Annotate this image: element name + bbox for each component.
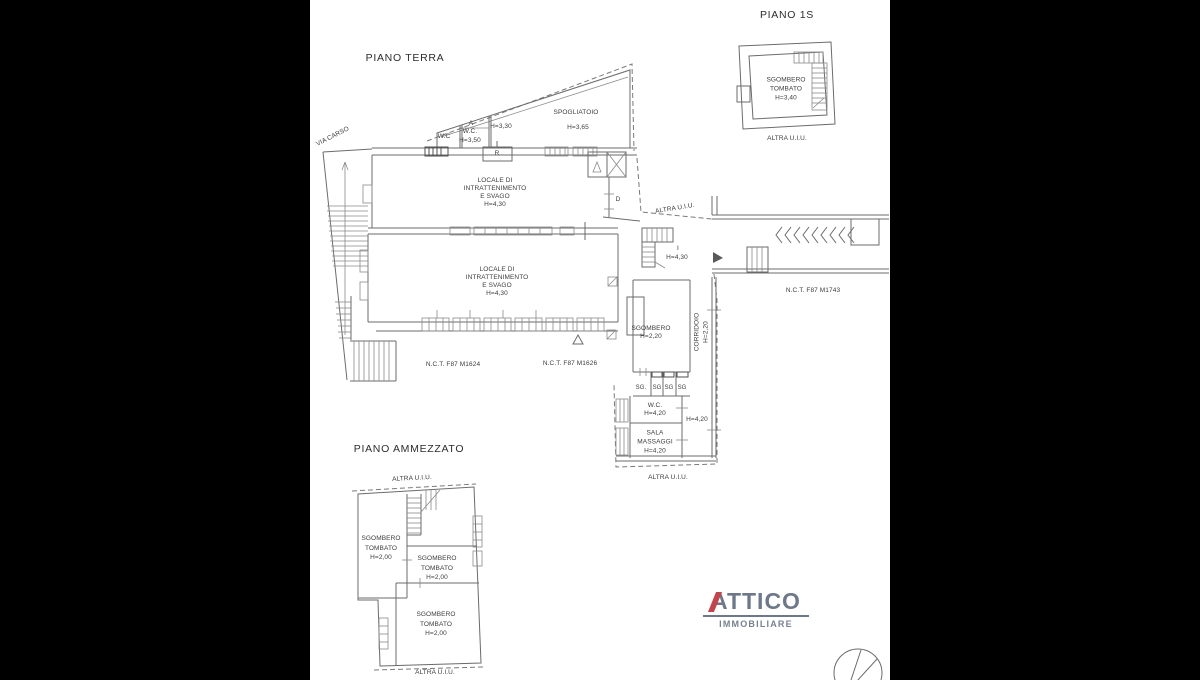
room-label-line: SGOMBERO bbox=[417, 554, 456, 564]
room-label-line: LOCALE DI bbox=[466, 266, 529, 274]
room-label-line: SGOMBERO bbox=[766, 76, 805, 85]
interior-stairs bbox=[642, 228, 673, 268]
room-label-wc-low: W.C. H=4,20 bbox=[644, 402, 666, 418]
room-label-line: SGOMBERO bbox=[631, 325, 670, 333]
street-stairs bbox=[323, 149, 396, 381]
room-height-label: H=3,30 bbox=[490, 123, 512, 131]
room-label-line: LOCALE DI bbox=[464, 177, 527, 185]
floor-title-piano-ammezzato: PIANO AMMEZZATO bbox=[354, 443, 464, 455]
room-height-label: H=4,20 bbox=[637, 447, 672, 456]
room-label-sgombero-amm-bottom: SGOMBERO TOMBATO H=2,00 bbox=[416, 610, 455, 639]
room-label-line: SALA bbox=[637, 429, 672, 438]
room-label-locale-upper: LOCALE DI INTRATTENIMENTO E SVAGO H=4,30 bbox=[464, 177, 527, 209]
room-label-sgombero-terra: SGOMBERO H=2,20 bbox=[631, 325, 670, 341]
corridor-plan bbox=[707, 196, 889, 458]
room-label-line: TOMBATO bbox=[416, 619, 455, 629]
room-label-corridoio: CORRIDOIO H=2,20 bbox=[694, 313, 711, 351]
room-label-sg-2: SG bbox=[653, 384, 662, 392]
room-label-line: SGOMBERO bbox=[416, 610, 455, 620]
altra-uiu-label-1s: ALTRA U.I.U. bbox=[767, 135, 807, 143]
floorplan-page: PIANO 1S SGOMBERO TOMBATO H=3,40 ALTRA U… bbox=[310, 0, 890, 680]
room-label-spogliatoio: SPOGLIATOIO bbox=[554, 109, 599, 117]
north-indicator-icon bbox=[834, 649, 882, 680]
room-height-label: H=3,65 bbox=[567, 124, 589, 132]
room-label-wc-right: W.C. bbox=[463, 128, 477, 136]
room-label-line: TOMBATO bbox=[766, 85, 805, 94]
room-height-label: H=4,30 bbox=[466, 290, 529, 298]
room-height-label: H=2,00 bbox=[361, 553, 400, 563]
room-height-label: H=2,20 bbox=[631, 333, 670, 341]
room-label-i: I bbox=[677, 245, 679, 253]
room-height-label: H=4,20 bbox=[644, 410, 666, 418]
room-label-line: SGOMBERO bbox=[361, 534, 400, 544]
agency-logo: ATTICO IMMOBILIARE bbox=[698, 589, 814, 629]
agency-logo-name: ATTICO bbox=[711, 589, 801, 613]
room-label-sgombero-amm-mid: SGOMBERO TOMBATO H=2,00 bbox=[417, 554, 456, 583]
room-label-sg-1: SG. bbox=[636, 384, 647, 392]
room-height-label: H=3,40 bbox=[766, 94, 805, 103]
room-label-line: E SVAGO bbox=[466, 282, 529, 290]
room-label-anti: A bbox=[469, 120, 473, 128]
cadastral-label-m1624: N.C.T. F87 M1624 bbox=[426, 361, 480, 369]
room-label-line: INTRATTENIMENTO bbox=[466, 274, 529, 282]
altra-uiu-label-amm-bottom: ALTRA U.I.U. bbox=[415, 669, 455, 677]
room-height-label: H=4,20 bbox=[686, 416, 708, 424]
cadastral-label-m1626: N.C.T. F87 M1626 bbox=[543, 360, 597, 368]
cadastral-label-m1743: N.C.T. F87 M1743 bbox=[786, 287, 840, 295]
scan-background: PIANO 1S SGOMBERO TOMBATO H=3,40 ALTRA U… bbox=[0, 0, 1200, 680]
room-height-label: H=3,50 bbox=[459, 137, 481, 145]
room-label-wc-left: W.C bbox=[438, 133, 451, 141]
room-label-line: TOMBATO bbox=[361, 543, 400, 553]
room-height-label: H=2,00 bbox=[417, 573, 456, 583]
room-label-line: TOMBATO bbox=[417, 563, 456, 573]
room-label-line: MASSAGGI bbox=[637, 438, 672, 447]
altra-uiu-label-bottom-right: ALTRA U.I.U. bbox=[648, 474, 688, 482]
room-label-sala-massaggi: SALA MASSAGGI H=4,20 bbox=[637, 429, 672, 456]
agency-name-text: ATTICO bbox=[711, 588, 801, 614]
room-label-locale-lower: LOCALE DI INTRATTENIMENTO E SVAGO H=4,30 bbox=[466, 266, 529, 298]
room-height-label: H=2,00 bbox=[416, 629, 455, 639]
room-label-sg-3: SG bbox=[665, 384, 674, 392]
agency-logo-subtitle: IMMOBILIARE bbox=[698, 619, 814, 629]
logo-divider bbox=[703, 615, 809, 617]
room-height-label: H=2,20 bbox=[702, 313, 711, 351]
room-height-label: H=4,30 bbox=[666, 254, 688, 262]
floor-title-piano-terra: PIANO TERRA bbox=[366, 52, 445, 64]
room-height-label: H=4,30 bbox=[464, 201, 527, 209]
room-label-line: CORRIDOIO bbox=[694, 313, 703, 351]
door-label-d: D bbox=[616, 196, 621, 204]
room-label-line: INTRATTENIMENTO bbox=[464, 185, 527, 193]
floor-title-piano-1s: PIANO 1S bbox=[760, 9, 814, 21]
room-label-sgombero-amm-left: SGOMBERO TOMBATO H=2,00 bbox=[361, 534, 400, 563]
room-label-line: W.C. bbox=[644, 402, 666, 410]
room-label-r: R bbox=[495, 150, 500, 158]
room-label-line: E SVAGO bbox=[464, 193, 527, 201]
room-label-sg-4: SG bbox=[678, 384, 687, 392]
room-label-sgombero-1s: SGOMBERO TOMBATO H=3,40 bbox=[766, 76, 805, 103]
